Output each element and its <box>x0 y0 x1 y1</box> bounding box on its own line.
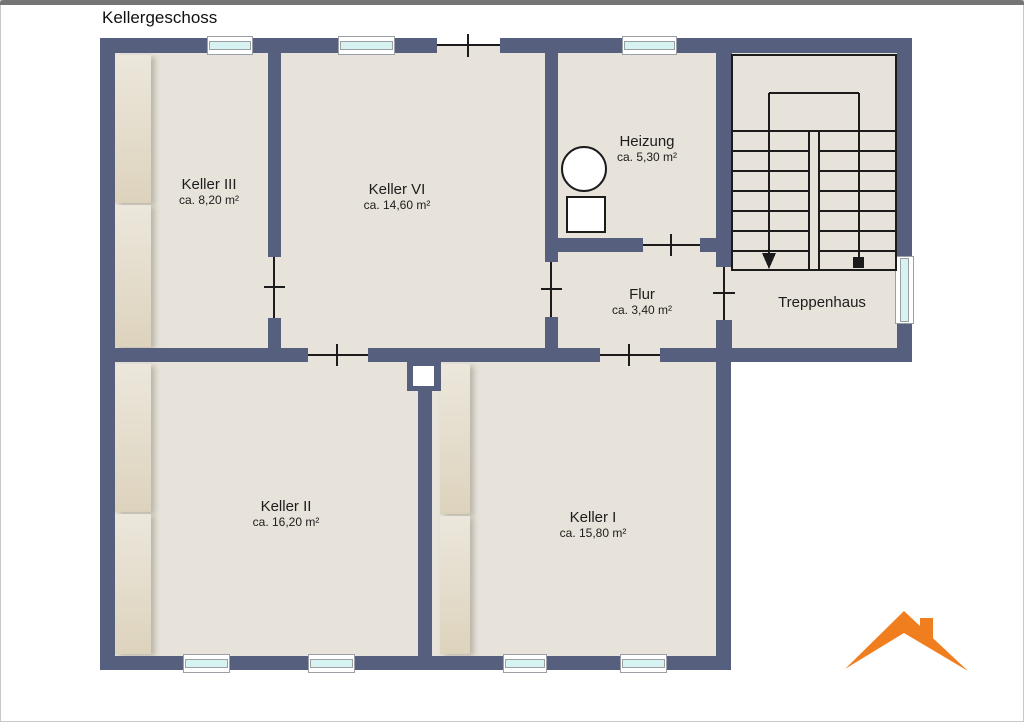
start-dot-icon <box>853 257 864 268</box>
door-keller3-keller6 <box>268 257 281 318</box>
door-flur-treppenhaus <box>716 267 732 320</box>
window-keller1-right <box>620 654 667 673</box>
staircase-drawing <box>731 54 897 271</box>
window-heizung <box>622 36 677 55</box>
floor-lower-section <box>100 362 730 670</box>
room-name: Keller I <box>560 509 627 526</box>
window-keller6 <box>338 36 395 55</box>
floor-shading-strip <box>115 205 151 347</box>
floor-shading-strip <box>440 364 470 514</box>
room-area: ca. 16,20 m² <box>253 515 320 529</box>
opening-top-wall <box>437 38 500 53</box>
room-label-heizung: Heizung ca. 5,30 m² <box>617 133 677 164</box>
room-label-keller1: Keller I ca. 15,80 m² <box>560 509 627 540</box>
room-area: ca. 15,80 m² <box>560 526 627 540</box>
room-label-flur: Flur ca. 3,40 m² <box>612 286 672 317</box>
room-label-keller2: Keller II ca. 16,20 m² <box>253 498 320 529</box>
room-area: ca. 3,40 m² <box>612 303 672 317</box>
page-title: Kellergeschoss <box>102 8 217 28</box>
chimney-flue <box>413 366 434 386</box>
square-tank-symbol <box>566 196 606 233</box>
room-label-treppenhaus: Treppenhaus <box>778 294 866 311</box>
door-keller6-flur <box>545 262 558 317</box>
room-name: Keller III <box>179 176 239 193</box>
floor-shading-strip <box>440 516 470 654</box>
floor-shading-strip <box>115 55 151 203</box>
room-name: Keller VI <box>364 181 431 198</box>
window-keller2-left <box>183 654 230 673</box>
wall-heizung-bottom <box>545 238 732 252</box>
room-area: ca. 8,20 m² <box>179 193 239 207</box>
floorplan-canvas: Kellergeschoss <box>0 0 1024 722</box>
room-label-keller6: Keller VI ca. 14,60 m² <box>364 181 431 212</box>
room-label-keller3: Keller III ca. 8,20 m² <box>179 176 239 207</box>
floor-shading-strip <box>115 364 151 512</box>
door-heizung-flur <box>643 238 700 252</box>
window-frame-top-bar <box>0 0 1024 5</box>
wall-middle-horizontal <box>100 348 912 362</box>
window-keller3 <box>207 36 253 55</box>
down-arrow-icon <box>762 253 776 269</box>
room-area: ca. 5,30 m² <box>617 150 677 164</box>
room-name: Flur <box>612 286 672 303</box>
room-area: ca. 14,60 m² <box>364 198 431 212</box>
window-keller2-right <box>308 654 355 673</box>
orange-roof-with-chimney-logo <box>840 605 972 675</box>
room-name: Treppenhaus <box>778 294 866 311</box>
wall-exterior-left <box>100 38 115 670</box>
room-name: Keller II <box>253 498 320 515</box>
window-keller1-left <box>503 654 547 673</box>
wall-keller2-keller1 <box>418 391 432 656</box>
room-name: Heizung <box>617 133 677 150</box>
circle-boiler-symbol <box>561 146 607 192</box>
wall-exterior-right-lower <box>716 362 731 670</box>
door-keller6-keller2 <box>308 348 368 362</box>
floor-shading-strip <box>115 514 151 654</box>
window-treppenhaus <box>895 256 914 324</box>
door-flur-keller1 <box>600 348 660 362</box>
